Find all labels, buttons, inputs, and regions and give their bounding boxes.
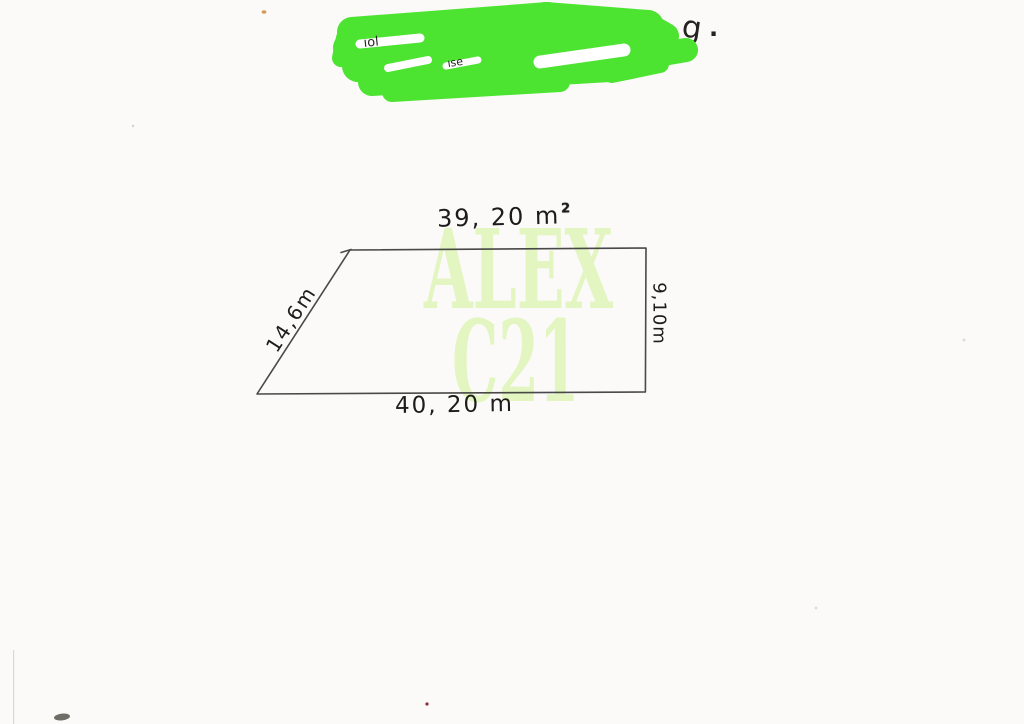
measurement-labels: 39, 20 m2 9,10m 40, 20 m 14,6m: [0, 0, 1024, 724]
bottom-side-label: 40, 20 m: [395, 391, 514, 419]
top-side-label: 39, 20 m2: [437, 201, 570, 232]
top-side-value: 39, 20 m: [437, 202, 561, 233]
right-side-label: 9,10m: [649, 276, 670, 352]
top-side-superscript: 2: [561, 201, 570, 216]
left-side-label: 14,6m: [258, 277, 324, 361]
